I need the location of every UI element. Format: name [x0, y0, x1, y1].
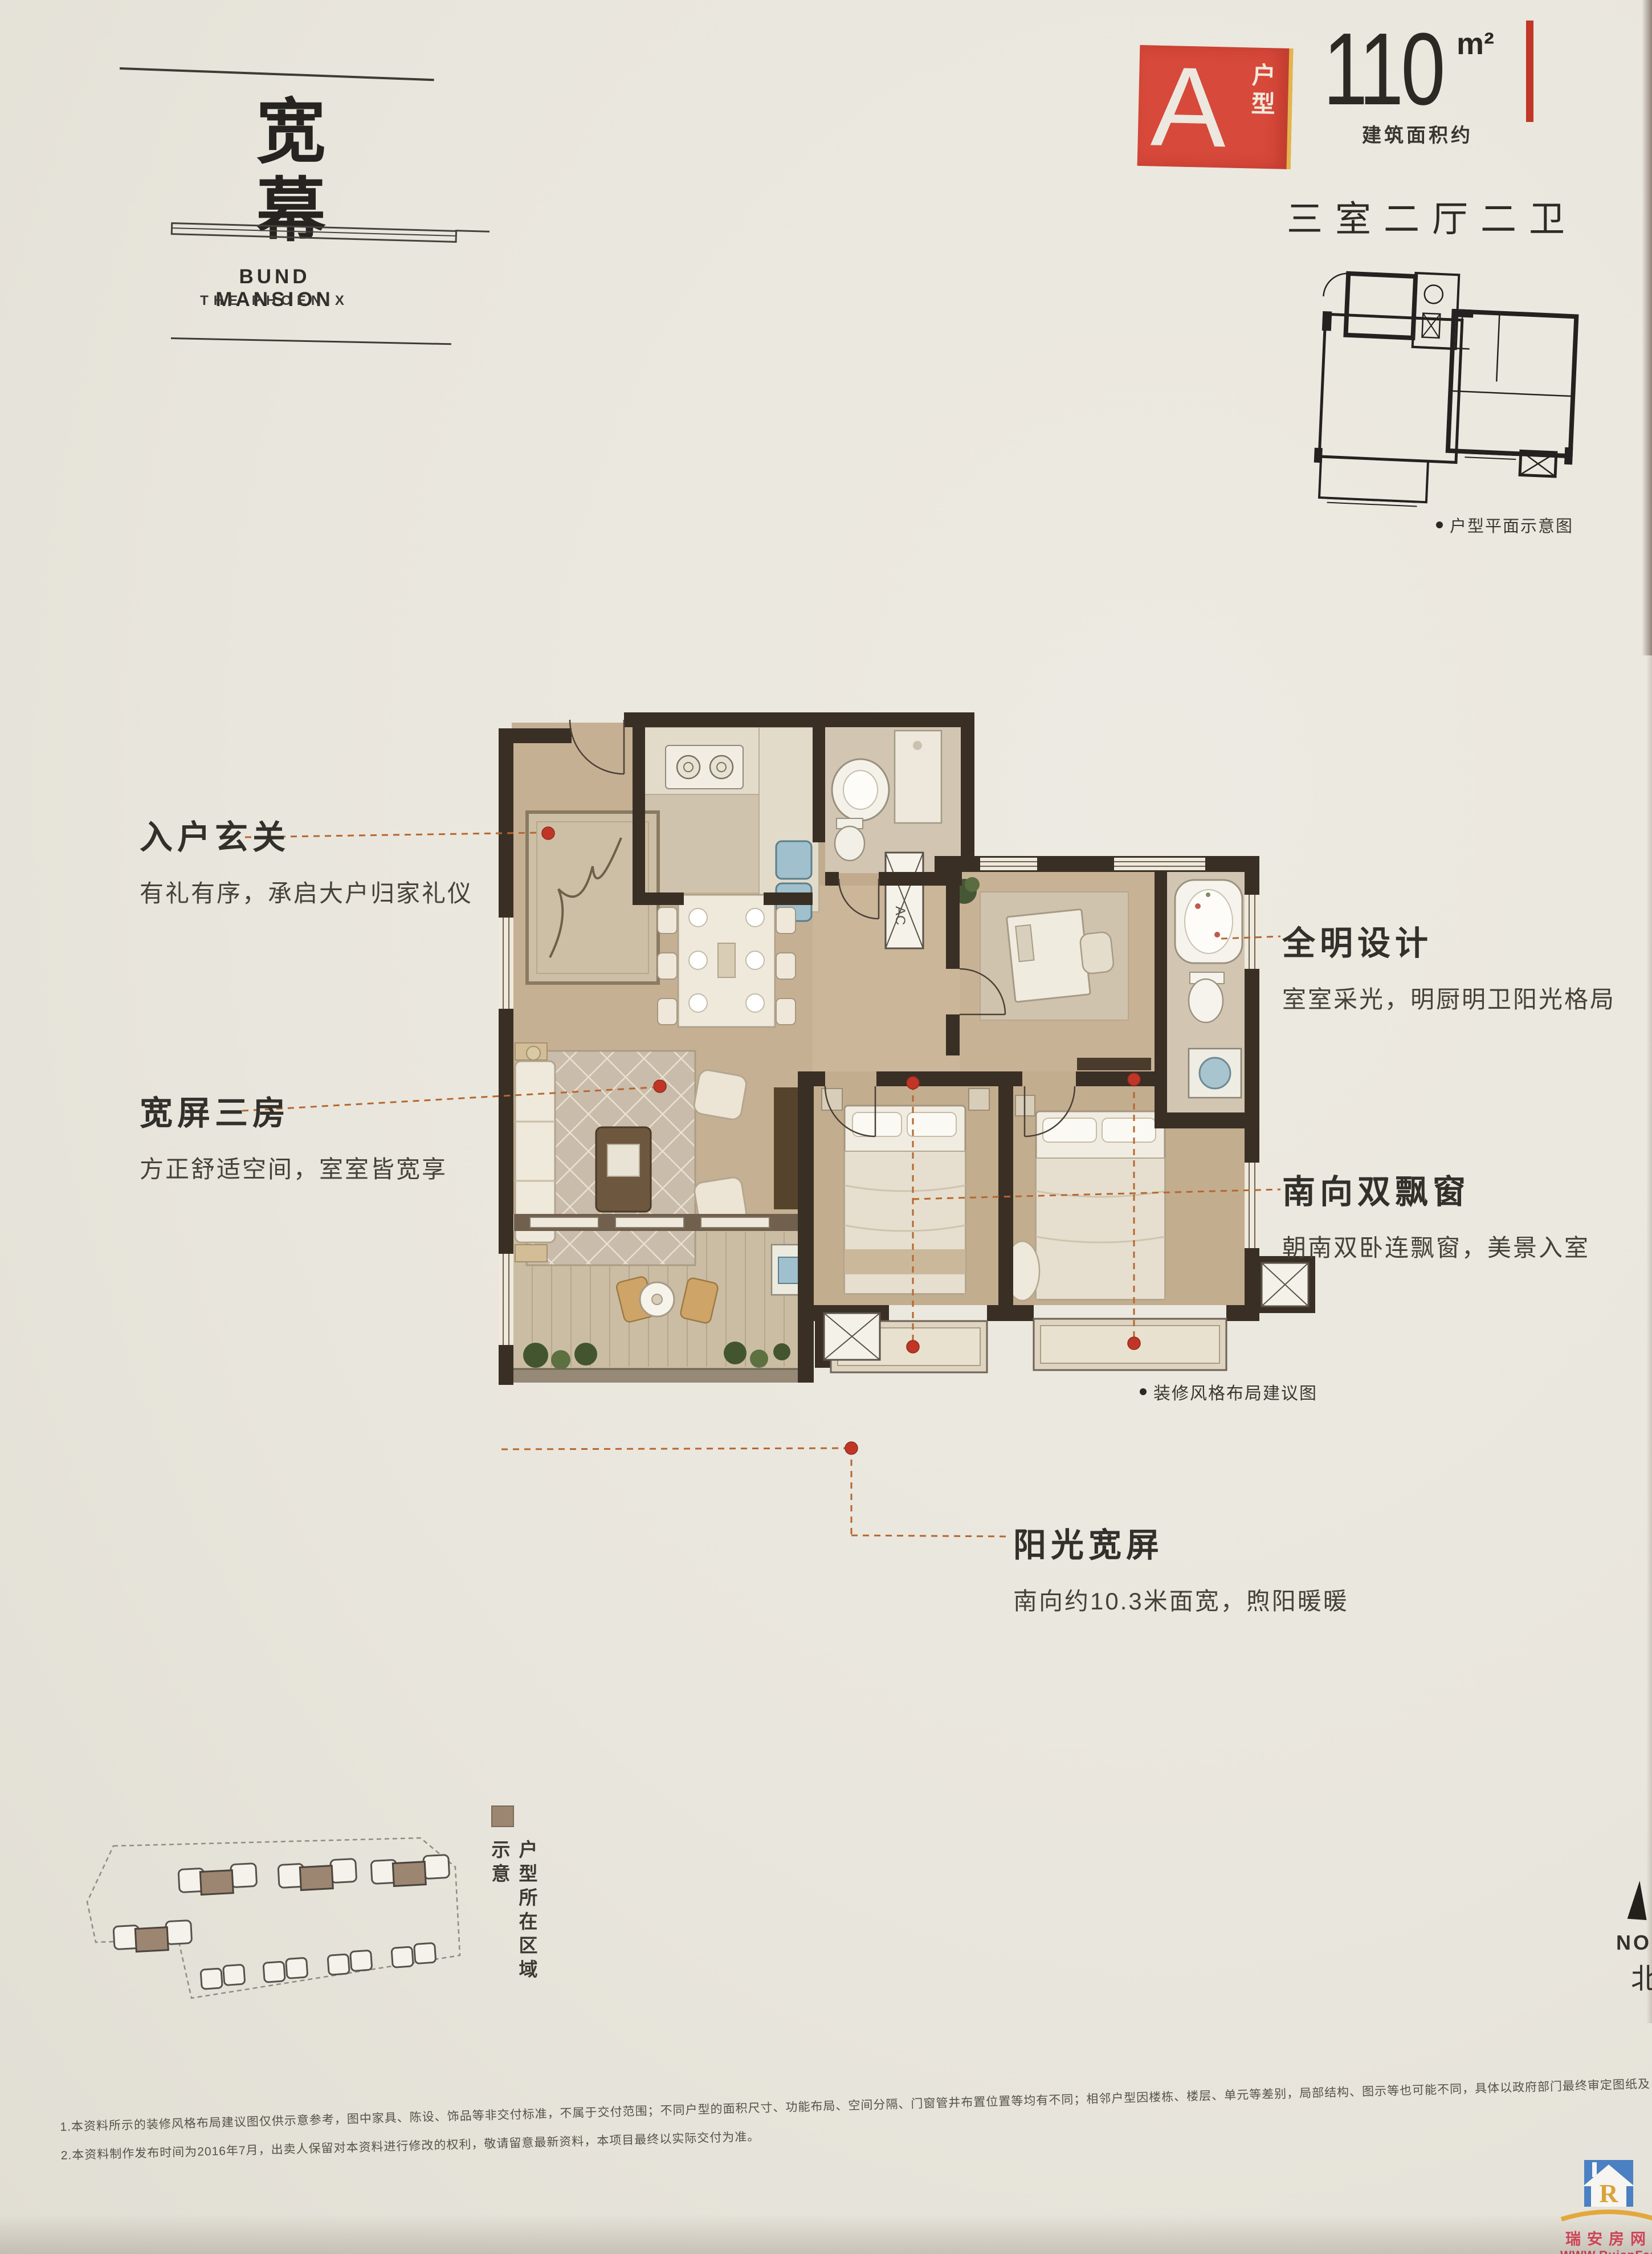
unit-type-label: 户型 — [1244, 62, 1280, 120]
bullet-icon — [1436, 521, 1443, 528]
north-label-cn: 北 — [1631, 1956, 1652, 1997]
unit-type-badge: A 户型 — [1137, 45, 1294, 169]
callout-entry-title: 入户玄关 — [140, 810, 473, 858]
brand-vertical-title: 宽幕 — [235, 95, 336, 288]
callout-baywindow-desc: 朝南双卧连飘窗，美景入室 — [1282, 1229, 1590, 1263]
watermark-url: WWW.RuianFang.Com — [1560, 2249, 1652, 2254]
callout-sunny-desc: 南向约10.3米面宽，煦阳暖暖 — [1013, 1582, 1349, 1617]
north-arrow-icon — [1627, 1880, 1650, 1920]
ac-shaft-icon: AC — [886, 853, 923, 948]
watermark-logo: R 瑞安房网 WWW.RuianFang.Com 瑞安房地产门户网站 — [1560, 2159, 1652, 2254]
siteplan-building-highlight — [178, 1863, 257, 1896]
bay-windows — [831, 1319, 1226, 1372]
schematic-caption-text: 户型平面示意图 — [1450, 513, 1573, 537]
siteplan-legend-caption: 户型所在区域示意 — [486, 1840, 540, 2005]
svg-text:AC: AC — [892, 906, 908, 925]
siteplan-diagram — [57, 1790, 490, 2057]
bedroom-1 — [822, 1089, 989, 1294]
callout-entry-desc: 有礼有序，承启大户归家礼仪 — [140, 874, 473, 909]
schematic-caption: 户型平面示意图 — [1436, 513, 1573, 537]
callout-bright-title: 全明设计 — [1282, 916, 1616, 964]
callout-bright: 全明设计 室室采光，明厨明卫阳光格局 — [1282, 916, 1616, 1015]
photo-edge-shadow-low — [1646, 655, 1652, 2023]
floorplan-rendering: AC — [496, 650, 1316, 1408]
unit-area-unit: m² — [1457, 26, 1494, 62]
disclaimer-block: 1.本资料所示的装修风格布局建议图仅供示意参考，图中家具、陈设、饰品等非交付标准… — [60, 2075, 1645, 2175]
callout-rooms-title: 宽屏三房 — [140, 1086, 447, 1134]
brochure-page: 宽幕 BUND MANSION THE PHOENIX A 户型 110 m² … — [0, 0, 1652, 2254]
unit-area-note: 建筑面积约 — [1362, 120, 1473, 148]
callout-bright-desc: 室室采光，明厨明卫阳光格局 — [1282, 980, 1616, 1015]
floorplan-caption: 装修风格布局建议图 — [1140, 1379, 1317, 1404]
unit-schematic-plan — [1279, 259, 1598, 527]
dining-set — [658, 895, 796, 1027]
brand-bar-inner-line — [173, 227, 455, 237]
unit-layout-summary: 三室二厅二卫 — [1287, 190, 1577, 242]
callout-entry: 入户玄关 有礼有序，承启大户归家礼仪 — [140, 810, 473, 909]
siteplan-legend-square — [491, 1805, 514, 1827]
photo-bottom-shadow — [0, 2214, 1652, 2254]
photo-edge-shadow — [1642, 0, 1652, 655]
unit-area-value: 110 — [1323, 10, 1443, 128]
floorplan-caption-text: 装修风格布局建议图 — [1153, 1379, 1317, 1404]
callout-rooms-desc: 方正舒适空间，室室皆宽享 — [140, 1150, 447, 1185]
callout-baywindow-title: 南向双飘窗 — [1282, 1165, 1590, 1213]
bullet-icon — [1140, 1388, 1147, 1395]
callout-sunny-title: 阳光宽屏 — [1013, 1518, 1349, 1566]
callout-rooms: 宽屏三房 方正舒适空间，室室皆宽享 — [140, 1086, 447, 1185]
svg-text:R: R — [1599, 2179, 1618, 2208]
badge-red-bar — [1526, 21, 1533, 122]
north-label-en: NORTH — [1616, 1931, 1652, 1955]
brand-bar-extension — [455, 230, 490, 233]
callout-baywindow: 南向双飘窗 朝南双卧连飘窗，美景入室 — [1282, 1165, 1590, 1263]
unit-letter: A — [1150, 47, 1228, 166]
unit-area: 110 — [1323, 10, 1476, 128]
brand-bottom-line — [171, 337, 451, 345]
brand-tagline: THE PHOENIX — [183, 293, 366, 309]
callout-sunny: 阳光宽屏 南向约10.3米面宽，煦阳暖暖 — [1013, 1518, 1349, 1617]
brand-top-line — [120, 67, 434, 81]
watermark-house-icon: R — [1560, 2159, 1652, 2223]
watermark-name: 瑞安房网 — [1560, 2227, 1652, 2249]
